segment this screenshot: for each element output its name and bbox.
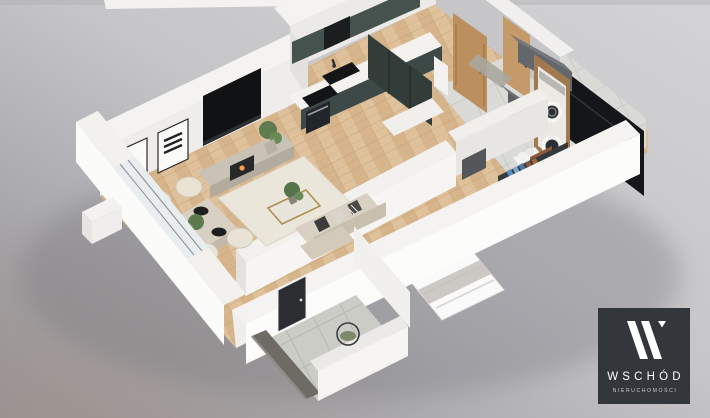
wschod-logo: WSCHÓD NIERUCHOMOŚCI bbox=[598, 308, 690, 404]
agency-watermark: WSCHÓD NIERUCHOMOŚCI bbox=[598, 308, 690, 404]
balcony-door-handle-icon bbox=[300, 299, 303, 302]
screenshot-root: WSCHÓD NIERUCHOMOŚCI bbox=[0, 0, 710, 418]
towel-roll-2 bbox=[526, 148, 534, 156]
fireplace-flame bbox=[239, 165, 244, 170]
dining-chair-4 bbox=[227, 228, 253, 248]
brand-tagline: NIERUCHOMOŚCI bbox=[613, 386, 678, 394]
dining-chair-2 bbox=[176, 177, 202, 197]
placemat-4 bbox=[212, 228, 227, 237]
chair-cushion bbox=[340, 331, 356, 341]
towel-roll bbox=[518, 152, 526, 160]
brand-name: WSCHÓD bbox=[607, 370, 685, 383]
